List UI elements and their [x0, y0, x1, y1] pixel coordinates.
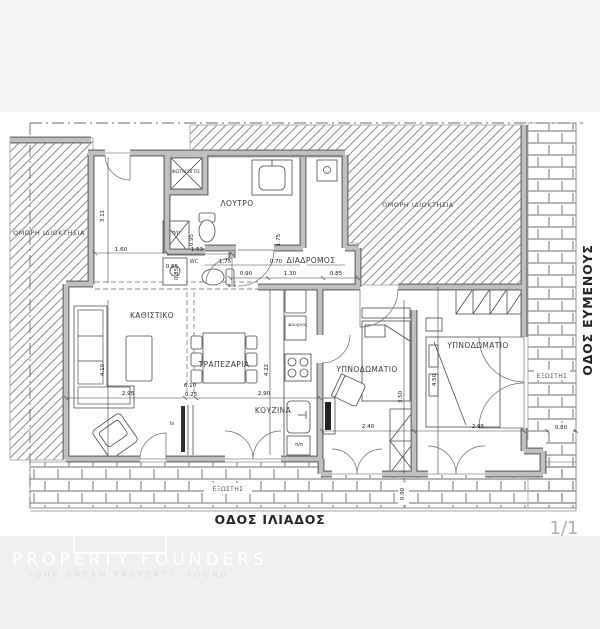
dim-hall-h: 3.11: [100, 210, 106, 222]
stove: [285, 354, 311, 381]
dim-bath-w: 1.75: [219, 259, 232, 265]
room-label-wc: WC: [190, 259, 199, 265]
desk: [322, 398, 335, 434]
dim-corridor-3: 0.85: [330, 271, 343, 277]
label-adjacent-right: ΟΜΟΡΗ ΙΔΙΟΚΤΗΣΙΑ: [382, 201, 454, 209]
dim-balcony-bottom: 0.90: [400, 487, 406, 500]
room-label-bedroom2: ΥΠΝΟΔΩΜΑΤΙΟ: [446, 341, 508, 350]
bath-door-arc: [238, 250, 274, 286]
coffee-table: [126, 336, 152, 381]
label-pantry: π/ρ: [172, 230, 180, 236]
dim-balcony-right-w: 0.80: [555, 425, 568, 431]
brand-tagline: YOUR DREAM PROPERTY, FOUND: [28, 570, 229, 579]
living-door-arc: [140, 433, 166, 459]
dim-closet-h: 0.95: [189, 233, 195, 246]
desk-chair: [331, 374, 366, 407]
watermark-footer: PROPERTY FOUNDERS YOUR DREAM PROPERTY, F…: [0, 536, 600, 629]
dim-total-w: 6.10: [184, 383, 197, 389]
room-label-kitchen: ΚΟΥΖΙΝΑ: [255, 406, 292, 415]
dim-wall-t: 0.25: [185, 392, 198, 398]
entry-door-arc: [105, 155, 130, 180]
kitchen-counter: [284, 289, 311, 455]
label-tv: tv: [170, 421, 175, 427]
room-label-bath: ΛΟΥΤΡΟ: [220, 199, 253, 208]
adjacent-property-left-hatch: [10, 138, 93, 460]
room-label-living: ΚΑΘΙΣΤΙΚΟ: [130, 311, 174, 320]
floor-plan-page: ΚΑΘΙΣΤΙΚΟ ΤΡΑΠΕΖΑΡΙΑ ΚΟΥΖΙΝΑ ΛΟΥΤΡΟ WC Δ…: [0, 0, 600, 629]
street-label-evmenous: ΟΔΟΣ ΕΥΜΕΝΟΥΣ: [580, 244, 595, 375]
label-balcony-right: ΕΞΩΣΤΗΣ: [537, 373, 568, 380]
dim-bed1-w: 2.40: [362, 424, 375, 430]
brand-title: PROPERTY FOUNDERS: [12, 550, 268, 570]
bedroom2-furniture: [426, 289, 524, 427]
dim-shower-h: 1.75: [276, 233, 282, 246]
nightstand: [426, 318, 442, 331]
bath-fixtures: [163, 160, 337, 285]
dim-shower-w: 0.70: [270, 259, 283, 265]
dim-bed1-h: 3.50: [398, 390, 404, 403]
dim-wc-w: 1.53: [191, 247, 204, 253]
street-label-iliados: ΟΔΟΣ ΙΛΙΑΔΟΣ: [215, 512, 326, 527]
dim-living-w: 2.95: [122, 391, 135, 397]
dim-hall-w: 1.60: [115, 247, 128, 253]
wardrobe-bedroom2: [456, 289, 524, 314]
bedroom1-door-arc: [322, 335, 350, 363]
tv-unit: [181, 405, 193, 455]
armchair: [91, 412, 138, 459]
bath-toilet: [199, 213, 215, 242]
oven: [285, 316, 306, 340]
dim-wc-h: 0.85: [174, 267, 180, 280]
fridge: [285, 290, 306, 313]
dim-bed2-h: 4.50: [432, 373, 438, 386]
label-oven: φουρνος: [288, 323, 308, 328]
label-adjacent-left: ΟΜΟΡΗ ΙΔΙΟΚΤΗΣΙΑ: [13, 229, 85, 237]
dim-corridor-2: 1.30: [284, 271, 297, 277]
dim-kitchen-h: 4.22: [264, 364, 270, 376]
dim-dining-w: 2.90: [258, 391, 271, 397]
living-french-door-arcs: [225, 431, 281, 459]
label-balcony-bottom: ΕΞΩΣΤΗΣ: [213, 486, 244, 493]
room-label-dining: ΤΡΑΠΕΖΑΡΙΑ: [198, 360, 250, 369]
washing-machine: [317, 160, 337, 181]
dining-table-and-chairs: [191, 333, 257, 383]
room-label-bedroom1: ΥΠΝΟΔΩΜΑΤΙΟ: [335, 365, 397, 374]
room-label-corridor: ΔΙΑΔΡΟΜΟΣ: [287, 256, 336, 265]
room-label-lightwell: ΦΩΤΑΓΩΓΟΣ: [172, 169, 200, 175]
label-appliance: π/π: [295, 442, 303, 448]
dim-living-h: 4.10: [100, 363, 106, 376]
dim-corridor-1: 0.90: [240, 271, 253, 277]
dim-bed2-w: 2.95: [472, 424, 485, 430]
